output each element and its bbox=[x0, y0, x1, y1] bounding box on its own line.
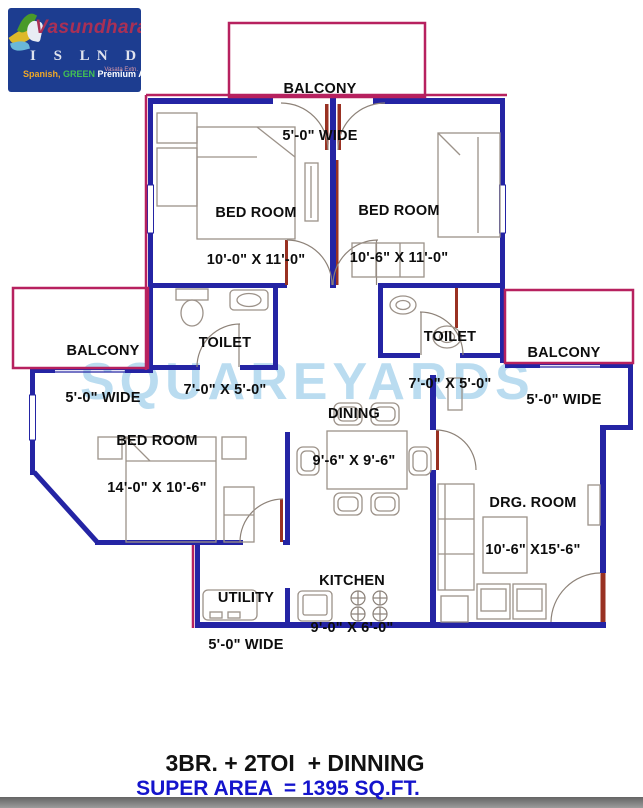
chamfer-wall bbox=[34, 472, 98, 543]
room-label-dining: DINING 9'-6" X 9'-6" bbox=[313, 376, 396, 500]
logo-brand-text: Vasundhara bbox=[35, 17, 141, 39]
logo-tagline: Spanish, GREEN Premium Apartment bbox=[8, 59, 141, 89]
room-name: BED ROOM bbox=[107, 434, 206, 450]
tagline-spanish: Spanish, bbox=[23, 69, 61, 79]
room-dims: 10'-0" X 11'-0" bbox=[207, 253, 306, 269]
room-name: BALCONY bbox=[526, 346, 601, 362]
vasundhara-logo: Vasundhara I S L N D Vasata Extn. Spanis… bbox=[8, 8, 141, 92]
room-label-bedroom-3: BED ROOM 14'-0" X 10'-6" bbox=[107, 403, 206, 527]
room-name: DINING bbox=[313, 407, 396, 423]
room-name: BED ROOM bbox=[207, 206, 306, 222]
room-dims: 5'-0" WIDE bbox=[208, 638, 283, 654]
room-dims: 10'-6" X15'-6" bbox=[485, 543, 580, 559]
floorplan-page: SQUAREYARDS bbox=[0, 0, 643, 808]
room-dims: 10'-6" X 11'-0" bbox=[350, 251, 449, 267]
tagline-green: GREEN bbox=[61, 69, 98, 79]
room-label-bedroom-1: BED ROOM 10'-0" X 11'-0" bbox=[207, 175, 306, 299]
tagline-premium: Premium Apartment bbox=[98, 69, 141, 79]
room-label-kitchen: KITCHEN 9'-0" X 6'-0" bbox=[311, 543, 394, 667]
room-dims: 14'-0" X 10'-6" bbox=[107, 481, 206, 497]
room-label-toilet-2: TOILET 7'-0" X 5'-0" bbox=[409, 299, 492, 423]
room-name: TOILET bbox=[184, 336, 267, 352]
room-name: KITCHEN bbox=[311, 574, 394, 590]
room-label-balcony-right: BALCONY 5'-0" WIDE bbox=[526, 315, 601, 439]
room-name: BALCONY bbox=[282, 82, 357, 98]
room-dims: 5'-0" WIDE bbox=[526, 393, 601, 409]
room-dims: 9'-6" X 9'-6" bbox=[313, 454, 396, 470]
room-name: UTILITY bbox=[208, 591, 283, 607]
room-name: BALCONY bbox=[65, 344, 140, 360]
footer-configuration: 3BR. + 2TOI + DINNING bbox=[165, 750, 424, 777]
room-dims: 5'-0" WIDE bbox=[282, 129, 357, 145]
room-dims: 7'-0" X 5'-0" bbox=[409, 377, 492, 393]
room-dims: 7'-0" X 5'-0" bbox=[184, 383, 267, 399]
room-dims: 9'-0" X 6'-0" bbox=[311, 621, 394, 637]
room-label-drawing-room: DRG. ROOM 10'-6" X15'-6" bbox=[485, 465, 580, 589]
room-label-balcony-top: BALCONY 5'-0" WIDE bbox=[282, 51, 357, 175]
room-name: DRG. ROOM bbox=[485, 496, 580, 512]
room-label-bedroom-2: BED ROOM 10'-6" X 11'-0" bbox=[350, 173, 449, 297]
room-name: TOILET bbox=[409, 330, 492, 346]
room-label-utility: UTILITY 5'-0" WIDE bbox=[208, 560, 283, 684]
footer-super-area: SUPER AREA = 1395 SQ.FT. bbox=[136, 777, 420, 801]
room-name: BED ROOM bbox=[350, 204, 449, 220]
